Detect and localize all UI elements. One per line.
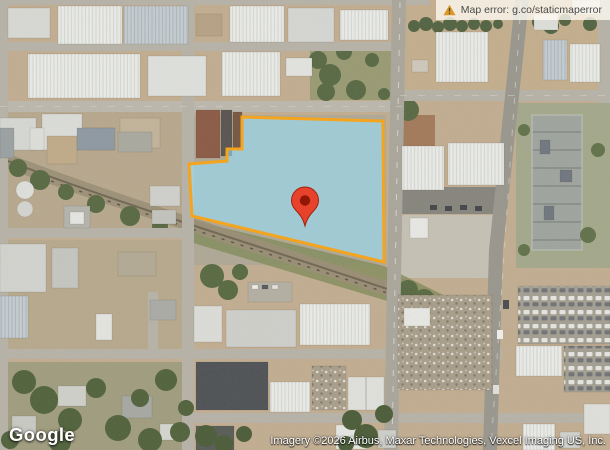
static-map[interactable]: Map error: g.co/staticmaperror Google Im… <box>0 0 610 450</box>
imagery-attribution: Imagery ©2026 Airbus, Maxar Technologies… <box>270 435 606 447</box>
warning-triangle-icon <box>443 4 456 16</box>
marker-dot <box>300 195 310 205</box>
map-error-text: Map error: g.co/staticmaperror <box>461 4 602 16</box>
map-error-banner[interactable]: Map error: g.co/staticmaperror <box>436 0 610 20</box>
google-logo: Google <box>9 424 75 446</box>
satellite-imagery <box>0 0 610 450</box>
